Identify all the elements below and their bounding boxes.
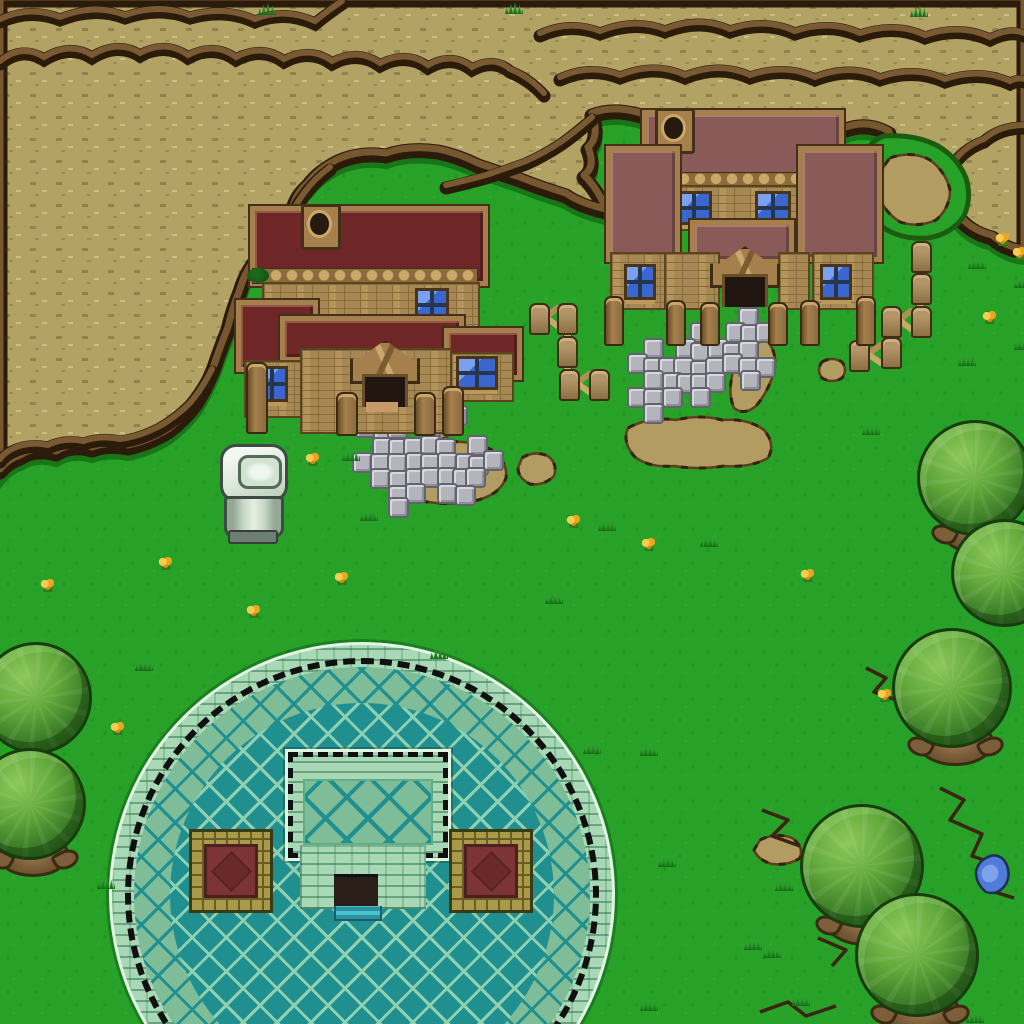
flower bbox=[566, 514, 582, 528]
left-house-house-threshold bbox=[366, 402, 398, 412]
grass-tuft bbox=[545, 592, 563, 604]
fence-post bbox=[557, 303, 578, 335]
plaza-platform-floor bbox=[303, 779, 433, 845]
grass-tuft bbox=[700, 535, 718, 547]
fence-post bbox=[881, 337, 902, 369]
right-house-house-post bbox=[700, 302, 720, 346]
game-map[interactable] bbox=[0, 0, 1024, 1024]
flower bbox=[995, 232, 1011, 246]
right-house-house-door[interactable] bbox=[722, 274, 768, 307]
left-house-house-post bbox=[442, 386, 464, 436]
right-house-house-post bbox=[666, 300, 686, 346]
grass-tuft bbox=[640, 744, 658, 756]
grass-tuft bbox=[258, 3, 276, 15]
grass-tuft bbox=[658, 855, 676, 867]
tree-canopy bbox=[0, 748, 86, 860]
stone-tile bbox=[643, 403, 664, 424]
plaza-planter-core bbox=[464, 844, 518, 898]
stone-tile bbox=[455, 485, 476, 506]
plaza-planter-core bbox=[204, 844, 258, 898]
monument-top bbox=[220, 444, 288, 502]
right-house-house-roof bbox=[606, 146, 680, 262]
right-house-house-post bbox=[768, 302, 788, 346]
bush bbox=[247, 268, 269, 283]
tree bbox=[892, 628, 1012, 748]
plaza-platform bbox=[288, 752, 448, 858]
flower bbox=[305, 452, 321, 466]
stone-monument[interactable] bbox=[218, 444, 290, 542]
fence-post bbox=[881, 306, 902, 338]
tree-canopy bbox=[951, 519, 1024, 627]
tree bbox=[951, 519, 1024, 627]
plaza-steps bbox=[334, 906, 382, 921]
plaza-doorway[interactable] bbox=[334, 874, 378, 909]
fence-post bbox=[529, 303, 550, 335]
flower bbox=[246, 604, 262, 618]
monument-base bbox=[228, 530, 278, 544]
tree-canopy bbox=[892, 628, 1012, 748]
stone-tile bbox=[690, 387, 711, 408]
plaza-planter bbox=[452, 832, 530, 910]
grass-tuft bbox=[862, 423, 880, 435]
right-house-house-window bbox=[820, 264, 852, 300]
stone-tile bbox=[662, 387, 683, 408]
grass-tuft bbox=[1014, 276, 1024, 288]
flower bbox=[334, 571, 350, 585]
grass-tuft bbox=[598, 519, 616, 531]
grass-tuft bbox=[775, 879, 793, 891]
fence-post bbox=[911, 306, 932, 338]
plaza-planter bbox=[192, 832, 270, 910]
left-house-house-post bbox=[414, 392, 436, 436]
grass-tuft bbox=[958, 354, 976, 366]
grass-tuft bbox=[792, 994, 810, 1006]
tree bbox=[855, 893, 979, 1017]
stone-tile bbox=[483, 450, 504, 471]
flower bbox=[982, 310, 998, 324]
grass-tuft bbox=[968, 257, 986, 269]
grass-tuft bbox=[640, 999, 658, 1011]
grass-tuft bbox=[430, 647, 448, 659]
stone-tile bbox=[740, 370, 761, 391]
grass-tuft bbox=[583, 742, 601, 754]
right-house-house-roof bbox=[798, 146, 882, 262]
tree-canopy bbox=[0, 642, 92, 754]
tree bbox=[0, 642, 92, 754]
tree bbox=[0, 748, 86, 860]
right-house-house-post bbox=[800, 300, 820, 346]
fence-post bbox=[911, 273, 932, 305]
flower bbox=[877, 688, 893, 702]
flower bbox=[641, 537, 657, 551]
fence-post bbox=[557, 336, 578, 368]
flower bbox=[800, 568, 816, 582]
tree-canopy bbox=[855, 893, 979, 1017]
fence-post bbox=[589, 369, 610, 401]
flower bbox=[158, 556, 174, 570]
right-house-house-window bbox=[624, 264, 656, 300]
grass-tuft bbox=[505, 2, 523, 14]
left-house-house-post bbox=[336, 392, 358, 436]
flower bbox=[40, 578, 56, 592]
left-house-house-post bbox=[246, 362, 268, 434]
stone-tile bbox=[388, 497, 409, 518]
right-house-house-post bbox=[604, 296, 624, 346]
monument-crystal bbox=[238, 455, 282, 489]
grass-tuft bbox=[744, 938, 762, 950]
fence-post bbox=[911, 241, 932, 273]
grass-tuft bbox=[763, 946, 781, 958]
right-house-house-post bbox=[856, 296, 876, 346]
left-house-house-chimney bbox=[301, 204, 341, 250]
flower bbox=[110, 721, 126, 735]
grass-tuft bbox=[1014, 338, 1024, 350]
grass-tuft bbox=[135, 659, 153, 671]
left-house-house-window bbox=[456, 356, 498, 390]
grass-tuft bbox=[910, 5, 928, 17]
object-layer bbox=[0, 0, 1024, 1024]
grass-tuft bbox=[360, 509, 378, 521]
flower bbox=[1012, 246, 1024, 260]
fence-post bbox=[559, 369, 580, 401]
